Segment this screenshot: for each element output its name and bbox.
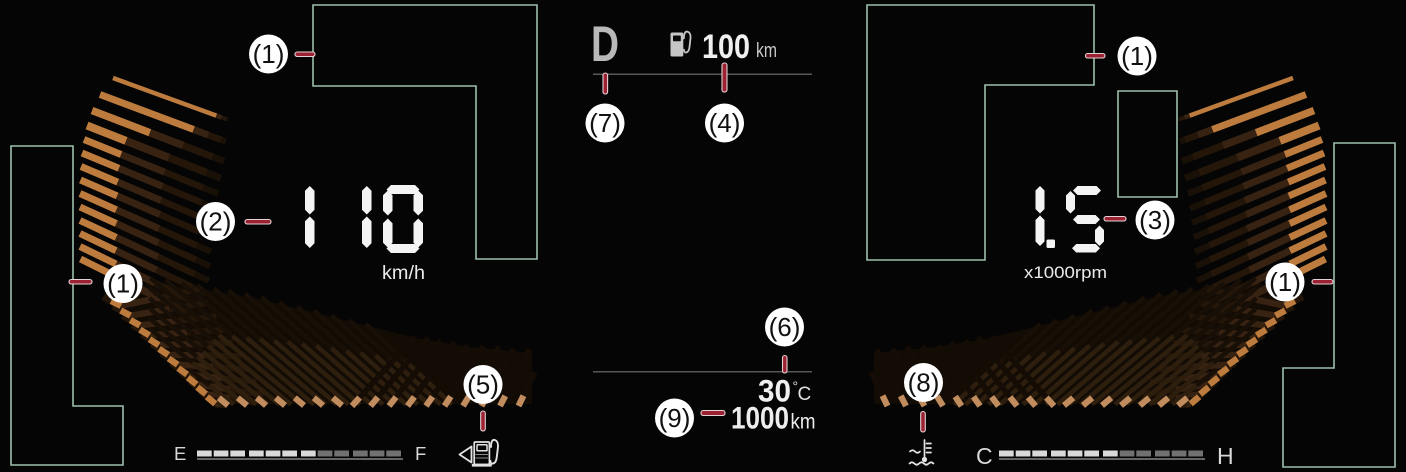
svg-text:(8): (8) <box>908 368 940 398</box>
svg-text:(1): (1) <box>1269 267 1301 297</box>
svg-text:(2): (2) <box>200 207 232 237</box>
svg-text:km: km <box>756 39 777 62</box>
svg-text:(1): (1) <box>1121 41 1153 71</box>
svg-text:(1): (1) <box>107 269 139 299</box>
svg-text:(6): (6) <box>769 312 801 342</box>
svg-text:(1): (1) <box>253 39 285 69</box>
svg-text:(4): (4) <box>709 108 741 138</box>
svg-text:C: C <box>976 443 993 469</box>
svg-text:km: km <box>791 411 816 434</box>
svg-text:km/h: km/h <box>382 263 425 284</box>
svg-text:E: E <box>174 443 186 464</box>
svg-text:(7): (7) <box>589 108 621 138</box>
svg-text:F: F <box>415 443 426 464</box>
svg-text:(9): (9) <box>659 403 691 433</box>
svg-text:D: D <box>591 16 619 72</box>
svg-text:(3): (3) <box>1139 205 1171 235</box>
svg-text:C: C <box>798 384 812 405</box>
svg-text:(5): (5) <box>467 370 499 400</box>
svg-text:100: 100 <box>702 28 750 66</box>
svg-text:H: H <box>1217 443 1234 469</box>
svg-text:x1000rpm: x1000rpm <box>1024 264 1107 282</box>
svg-text:1000: 1000 <box>731 400 789 436</box>
